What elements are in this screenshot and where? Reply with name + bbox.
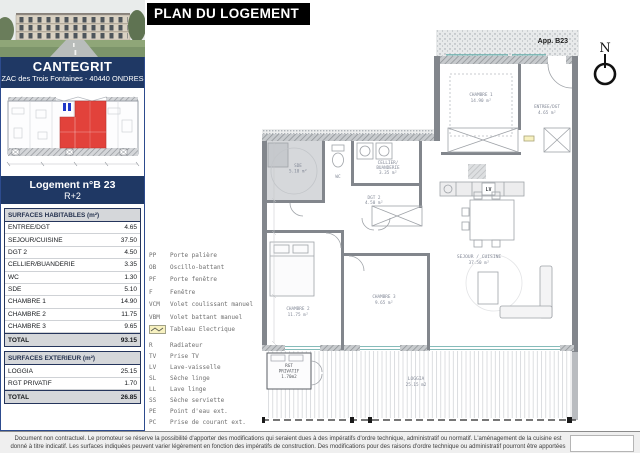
table-row: ENTREE/DGT4.65 xyxy=(5,222,140,234)
plan-document-page: CANTEGRIT ZAC des Trois Fontaines - 4044… xyxy=(0,0,640,453)
page-title: PLAN DU LOGEMENT xyxy=(147,3,310,25)
table-row: LOGGIA25.15 xyxy=(5,365,140,377)
table-row: CHAMBRE 39.65 xyxy=(5,321,140,333)
svg-text:9.65 m²: 9.65 m² xyxy=(375,300,393,306)
north-label: N xyxy=(599,41,610,56)
legend-item: FFenêtre xyxy=(149,286,261,298)
table-row: DGT 24.50 xyxy=(5,247,140,259)
table-row: RGT PRIVATIF1.70 xyxy=(5,378,140,390)
legend-item: SSSèche serviette xyxy=(149,395,261,406)
electrical-panel-icon xyxy=(149,325,166,334)
elevator-marker xyxy=(68,103,71,111)
apartment-plan-label: App. B23 xyxy=(538,38,568,45)
legend-item: LLLave linge xyxy=(149,384,261,395)
sidebar: CANTEGRIT ZAC des Trois Fontaines - 4044… xyxy=(0,0,145,431)
legend-item: PPPorte palière xyxy=(149,249,261,261)
footer-disclaimer-bar: Document non contractuel. Le promoteur s… xyxy=(0,431,640,453)
legend-item: LVLave-vaisselle xyxy=(149,362,261,373)
footer-logo-box xyxy=(570,435,634,452)
table-row: SDE5.10 xyxy=(5,284,140,296)
legend-item: TVPrise TV xyxy=(149,351,261,362)
svg-text:1.70m2: 1.70m2 xyxy=(281,374,297,380)
legend-item: VCMVolet coulissant manuel xyxy=(149,299,261,311)
sidebar-lower: CANTEGRIT ZAC des Trois Fontaines - 4044… xyxy=(0,57,145,431)
surfaces-exterieur-header: SURFACES EXTERIEUR (m²) xyxy=(5,352,140,365)
building-photo xyxy=(0,0,145,57)
svg-text:25.15 m2: 25.15 m2 xyxy=(406,382,427,388)
surfaces-habitables-table: SURFACES HABITABLES (m²) ENTREE/DGT4.65 … xyxy=(4,208,141,347)
unit-banner: Logement n°B 23 R+2 xyxy=(1,176,144,204)
svg-text:4.50 m²: 4.50 m² xyxy=(365,200,383,206)
project-banner: CANTEGRIT ZAC des Trois Fontaines - 4044… xyxy=(1,57,144,88)
room-label-chambre2: CHAMBRE 2 xyxy=(286,306,310,312)
lv-appliance-label: LV xyxy=(485,187,491,193)
svg-text:5.10 m²: 5.10 m² xyxy=(289,169,307,175)
table-total-row: TOTAL26.85 xyxy=(5,390,140,403)
stairs-marker xyxy=(63,103,66,111)
svg-text:PRIVATIF: PRIVATIF xyxy=(279,369,300,375)
legend-item: PEPoint d'eau ext. xyxy=(149,406,261,417)
room-label-wc: WC xyxy=(335,174,341,180)
surfaces-exterieur-table: SURFACES EXTERIEUR (m²) LOGGIA25.15 RGT … xyxy=(4,351,141,404)
legend-item: RRadiateur xyxy=(149,340,261,351)
project-name: CANTEGRIT xyxy=(1,60,144,74)
table-row: CELLIER/BUANDERIE3.35 xyxy=(5,259,140,271)
svg-text:3.35 m²: 3.35 m² xyxy=(379,170,397,176)
table-row: CHAMBRE 114.90 xyxy=(5,296,140,308)
surfaces-habitables-header: SURFACES HABITABLES (m²) xyxy=(5,209,140,222)
project-address: ZAC des Trois Fontaines - 40440 ONDRES xyxy=(1,74,144,84)
svg-text:37.50 m²: 37.50 m² xyxy=(469,260,490,266)
svg-text:4.65 m²: 4.65 m² xyxy=(538,110,556,116)
unit-title: Logement n°B 23 xyxy=(1,179,144,191)
room-label-rgt: RGT xyxy=(285,363,293,369)
legend-item: OBOscillo-battant xyxy=(149,261,261,273)
room-label-sejour: SEJOUR / CUISINE xyxy=(457,254,501,260)
room-label-entree: ENTREE/DGT xyxy=(534,104,560,110)
legend-item: PFPorte fenêtre xyxy=(149,274,261,286)
svg-text:11.75 m²: 11.75 m² xyxy=(288,312,309,318)
legend-item: PCPrise de courant ext. xyxy=(149,417,261,428)
room-label-chambre1: CHAMBRE 1 xyxy=(469,92,493,98)
legend-item: SLSèche linge xyxy=(149,373,261,384)
table-total-row: TOTAL93.15 xyxy=(5,333,140,346)
legend-item: VBMVolet battant manuel xyxy=(149,311,261,323)
room-label-chambre3: CHAMBRE 3 xyxy=(372,294,396,300)
room-label-loggia: LOGGIA xyxy=(408,376,425,382)
legend-item-tableau: Tableau Electrique xyxy=(149,323,261,335)
svg-text:14.90 m²: 14.90 m² xyxy=(471,98,492,104)
disclaimer-text: Document non contractuel. Le promoteur s… xyxy=(0,432,640,453)
table-row: CHAMBRE 211.75 xyxy=(5,309,140,321)
floor-locator-miniplan xyxy=(2,88,144,176)
apartment-floor-plan: App. B23 xyxy=(254,28,580,430)
table-row: WC1.30 xyxy=(5,272,140,284)
table-row: SEJOUR/CUISINE37.50 xyxy=(5,234,140,246)
unit-floor: R+2 xyxy=(1,191,144,202)
plan-legend: PPPorte palière OBOscillo-battant PFPort… xyxy=(149,249,261,428)
north-arrow-icon: N xyxy=(590,40,620,88)
room-label-sde: SDE xyxy=(294,163,302,169)
